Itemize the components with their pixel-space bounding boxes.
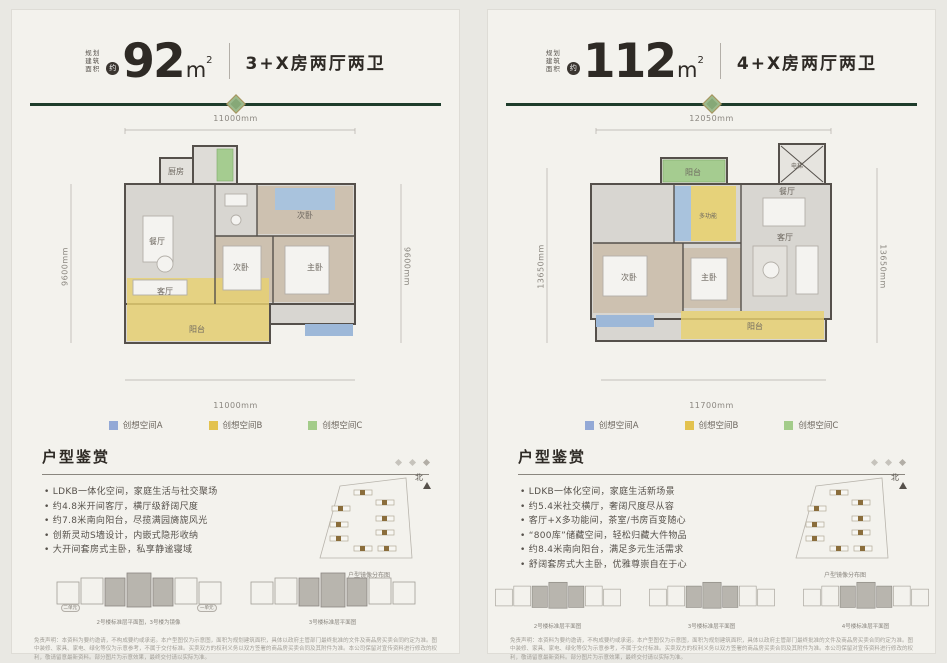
bullet: LDKB一体化空间，家庭生活新场景	[520, 485, 758, 500]
svg-text:阳台: 阳台	[189, 324, 205, 334]
mini-floorplate-3: 4号楼标准层平面图	[802, 576, 930, 630]
legend-item-a: 创想空间A	[585, 419, 639, 431]
legend-item-c: 创想空间C	[308, 419, 362, 431]
legend-112: 创想空间A 创想空间B 创想空间C	[488, 419, 935, 431]
disclaimer-text: 免责声明：本资料为要约邀请，不构成要约或承诺。本户型图仅为示意图，面积为规划建筑…	[510, 637, 913, 663]
feature-bullets: LDKB一体化空间，家庭生活与社交聚场 约4.8米开间客厅，横厅级舒阔尺度 约7…	[44, 485, 282, 558]
svg-text:多功能: 多功能	[699, 212, 717, 220]
mini-caption: 4号楼标准层平面图	[802, 622, 930, 630]
layout-description: 3+X房两厅两卫	[246, 49, 386, 74]
bullet: 约8.4米南向阳台，满足多元生活需求	[520, 543, 758, 558]
disclaimer-text: 免责声明：本资料为要约邀请，不构成要约或承诺。本户型图仅为示意图，面积为规划建筑…	[34, 637, 437, 663]
bullet: 约4.8米开间客厅，横厅级舒阔尺度	[44, 500, 282, 515]
area-prefix-line: 规划	[546, 49, 561, 57]
svg-text:厨房: 厨房	[168, 166, 184, 176]
mini-floorplate-1: 二单元 一单元 2号楼标准层平面图，3号楼为镜像	[55, 570, 223, 626]
svg-text:电梯: 电梯	[791, 162, 803, 170]
svg-text:餐厅: 餐厅	[779, 187, 795, 196]
area-prefix-line: 建筑	[546, 57, 561, 65]
bullet: 大开间套房式主卧，私享静谧寝域	[44, 543, 282, 558]
north-arrow-icon	[899, 473, 907, 489]
area-value: 112	[583, 38, 675, 85]
legend-item-b: 创想空间B	[209, 419, 263, 431]
section-title: 户型鉴赏	[42, 446, 110, 467]
svg-text:次卧: 次卧	[233, 262, 249, 272]
mini-floorplate-svg	[802, 576, 930, 616]
north-compass: 北	[891, 474, 907, 483]
green-divider	[506, 103, 917, 106]
north-compass: 北	[415, 474, 431, 483]
legend-swatch-a	[585, 421, 594, 430]
section-header: 户型鉴赏	[42, 446, 429, 475]
diamond-ornaments	[872, 460, 905, 465]
area-value: 92	[122, 38, 183, 85]
unit-label: 一单元	[197, 604, 217, 612]
mini-caption: 2号楼标准层平面图	[494, 622, 622, 630]
legend-92: 创想空间A 创想空间B 创想空间C	[12, 419, 459, 431]
bullet: 约5.4米社交横厅，奢阔尺度尽从容	[520, 500, 758, 515]
section-title: 户型鉴赏	[518, 446, 586, 467]
sitemap-svg	[310, 472, 428, 564]
approx-badge: 约	[106, 62, 119, 75]
mini-caption: 2号楼标准层平面图，3号楼为镜像	[55, 618, 223, 626]
bullet: “800库”储藏空间，轻松归藏大件物品	[520, 529, 758, 544]
bullet: 客厅+X多功能间，茶室/书房百变随心	[520, 514, 758, 529]
bullet: 舒阔套房式大主卧，优雅尊崇自在于心	[520, 558, 758, 573]
svg-text:阳台: 阳台	[747, 321, 763, 331]
north-arrow-icon	[423, 473, 431, 489]
floor-plan-svg: 电梯 阳台 多功能 次卧 主卧 餐厅 客厅 阳台	[541, 128, 883, 384]
approx-badge: 约	[567, 62, 580, 75]
area-unit: m2	[677, 55, 704, 82]
legend-swatch-c	[308, 421, 317, 430]
area-prefix-line: 面积	[85, 65, 100, 73]
mini-caption: 3号楼标准层平面图	[249, 618, 417, 626]
area-prefix: 规划 建筑 面积	[85, 49, 100, 73]
medallion-ornament	[226, 94, 246, 114]
floor-plan-svg: 厨房 餐厅 客厅 阳台 次卧 次卧 主卧	[65, 128, 407, 384]
mini-floorplates: 二单元 一单元 2号楼标准层平面图，3号楼为镜像 3号楼标准层平面图	[12, 570, 459, 626]
mini-floorplate-1: 2号楼标准层平面图	[494, 576, 622, 630]
dim-top: 11000mm	[51, 114, 421, 123]
mini-floorplate-2: 3号楼标准层平面图	[249, 570, 417, 626]
mini-floorplate-svg	[648, 576, 776, 616]
area-prefix-line: 面积	[546, 65, 561, 73]
area-prefix: 规划 建筑 面积	[546, 49, 561, 73]
site-distribution-map: 北 户型镜像分布图	[305, 472, 433, 579]
area-prefix-line: 规划	[85, 49, 100, 57]
legend-item-c: 创想空间C	[784, 419, 838, 431]
site-distribution-map: 北 户型镜像分布图	[781, 472, 909, 579]
dim-bottom: 11700mm	[527, 401, 897, 410]
section-header: 户型鉴赏	[518, 446, 905, 475]
svg-text:次卧: 次卧	[297, 210, 313, 220]
svg-text:餐厅: 餐厅	[149, 237, 165, 246]
mini-floorplate-svg	[494, 576, 622, 616]
svg-text:阳台: 阳台	[685, 167, 701, 177]
legend-swatch-b	[685, 421, 694, 430]
panel-112: 规划 建筑 面积 约 112 m2 4+X房两厅两卫 12050mm 11700…	[487, 9, 936, 654]
unit-label: 二单元	[61, 604, 81, 612]
floor-plan-112: 12050mm 11700mm 13650mm 13650mm	[527, 114, 897, 410]
svg-text:主卧: 主卧	[701, 272, 717, 282]
floor-plan-92: 11000mm 11000mm 9600mm 9600mm	[51, 114, 421, 410]
header-112: 规划 建筑 面积 约 112 m2 4+X房两厅两卫	[488, 30, 935, 92]
green-divider	[30, 103, 441, 106]
svg-text:客厅: 客厅	[777, 232, 793, 242]
svg-text:次卧: 次卧	[621, 272, 637, 282]
svg-text:主卧: 主卧	[307, 262, 323, 272]
layout-description: 4+X房两厅两卫	[737, 49, 877, 74]
diamond-ornaments	[396, 460, 429, 465]
mini-floorplate-svg	[249, 570, 417, 612]
svg-text:客厅: 客厅	[157, 286, 173, 296]
legend-swatch-a	[109, 421, 118, 430]
legend-swatch-c	[784, 421, 793, 430]
bullet: LDKB一体化空间，家庭生活与社交聚场	[44, 485, 282, 500]
header-92: 规划 建筑 面积 约 92 m2 3+X房两厅两卫	[12, 30, 459, 92]
legend-item-a: 创想空间A	[109, 419, 163, 431]
mini-floorplates: 2号楼标准层平面图 3号楼标准层平面图	[488, 576, 935, 630]
mini-caption: 3号楼标准层平面图	[648, 622, 776, 630]
sitemap-svg	[786, 472, 904, 564]
feature-bullets: LDKB一体化空间，家庭生活新场景 约5.4米社交横厅，奢阔尺度尽从容 客厅+X…	[520, 485, 758, 572]
bullet: 创新灵动S墙设计，内嵌式隐形收纳	[44, 529, 282, 544]
header-separator	[229, 43, 230, 79]
area-prefix-line: 建筑	[85, 57, 100, 65]
header-separator	[720, 43, 721, 79]
dim-top: 12050mm	[527, 114, 897, 123]
mini-floorplate-2: 3号楼标准层平面图	[648, 576, 776, 630]
bullet: 约7.8米南向阳台，尽揽满园旖旎风光	[44, 514, 282, 529]
area-unit: m2	[186, 55, 213, 82]
legend-swatch-b	[209, 421, 218, 430]
legend-item-b: 创想空间B	[685, 419, 739, 431]
panel-92: 规划 建筑 面积 约 92 m2 3+X房两厅两卫 11000mm 11000m…	[11, 9, 460, 654]
medallion-ornament	[702, 94, 722, 114]
dim-bottom: 11000mm	[51, 401, 421, 410]
